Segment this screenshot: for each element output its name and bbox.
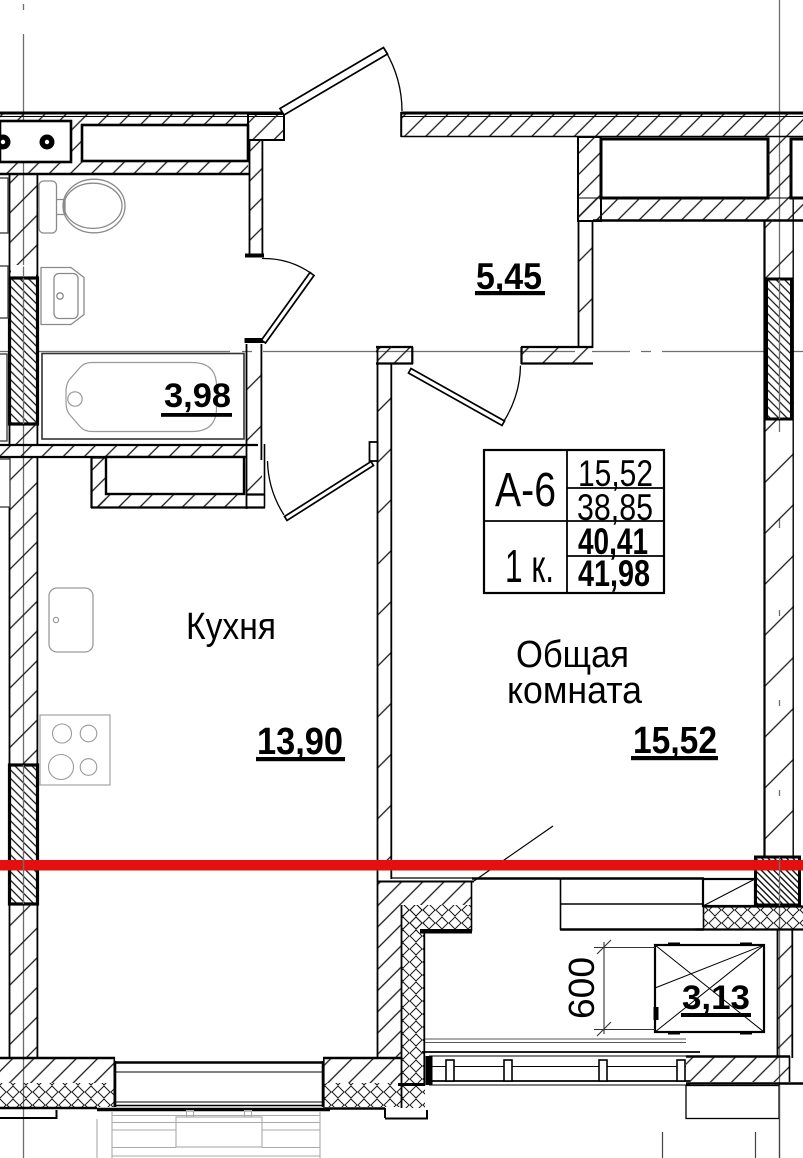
svg-text:13,90: 13,90 (257, 721, 343, 763)
svg-text:3,13: 3,13 (682, 979, 750, 1017)
svg-text:Кухня: Кухня (186, 606, 276, 648)
svg-text:41,98: 41,98 (578, 553, 650, 594)
svg-text:5,45: 5,45 (476, 256, 542, 297)
svg-text:А-6: А-6 (495, 464, 556, 517)
svg-text:15,52: 15,52 (633, 720, 717, 762)
svg-text:3,98: 3,98 (164, 377, 231, 415)
svg-text:600: 600 (561, 957, 602, 1019)
svg-text:1 к.: 1 к. (505, 540, 554, 592)
svg-text:комната: комната (507, 670, 643, 712)
